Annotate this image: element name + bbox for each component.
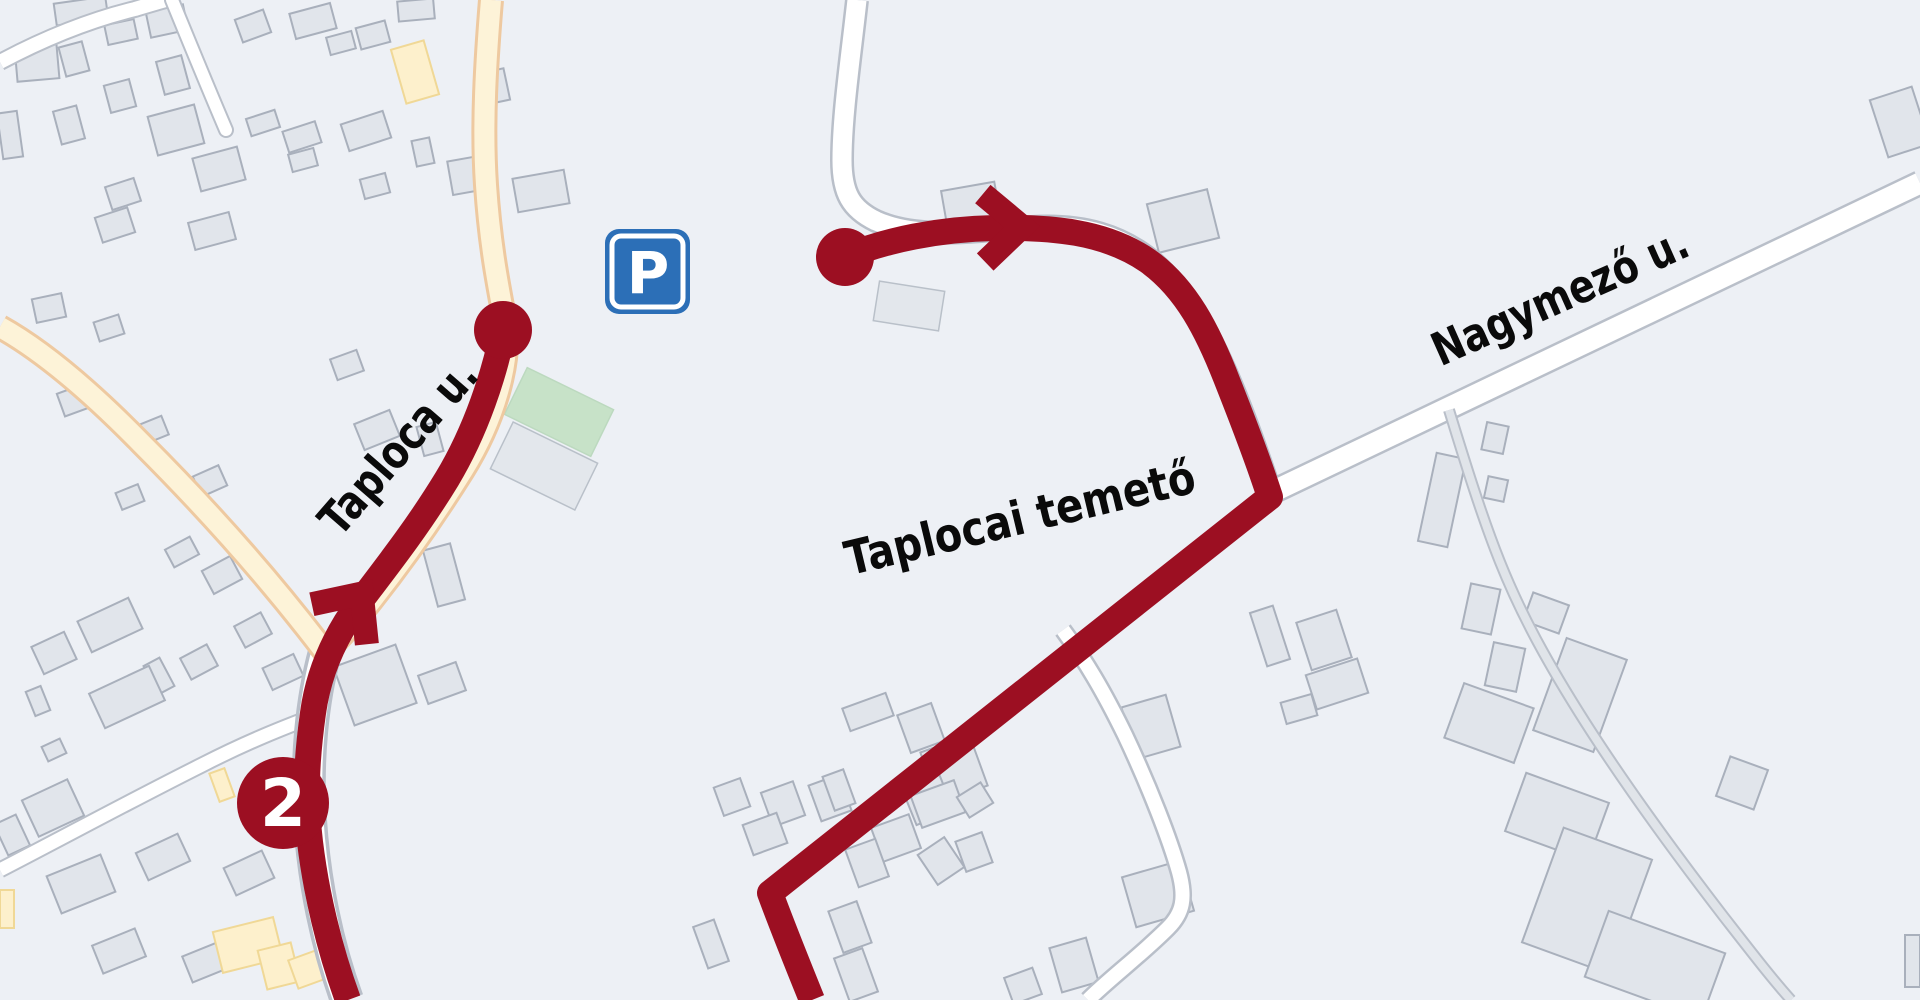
building bbox=[397, 0, 435, 22]
building bbox=[104, 79, 136, 113]
route-endpoint-dot-east bbox=[816, 228, 874, 286]
route-badge[interactable]: 2 bbox=[237, 757, 329, 849]
parking-sign-icon[interactable]: P bbox=[605, 229, 690, 314]
building bbox=[32, 293, 66, 323]
building bbox=[1481, 422, 1508, 454]
building bbox=[1905, 935, 1920, 987]
building-yellow bbox=[0, 890, 14, 928]
route-badge-number: 2 bbox=[260, 765, 306, 842]
map-canvas[interactable]: 2 P Taploca u. Taplocai temető Nagymező … bbox=[0, 0, 1920, 1000]
map-svg[interactable]: 2 P Taploca u. Taplocai temető Nagymező … bbox=[0, 0, 1920, 1000]
route-endpoint-dot-west bbox=[474, 301, 532, 359]
parking-sign-letter: P bbox=[627, 239, 670, 307]
building bbox=[1484, 476, 1508, 502]
